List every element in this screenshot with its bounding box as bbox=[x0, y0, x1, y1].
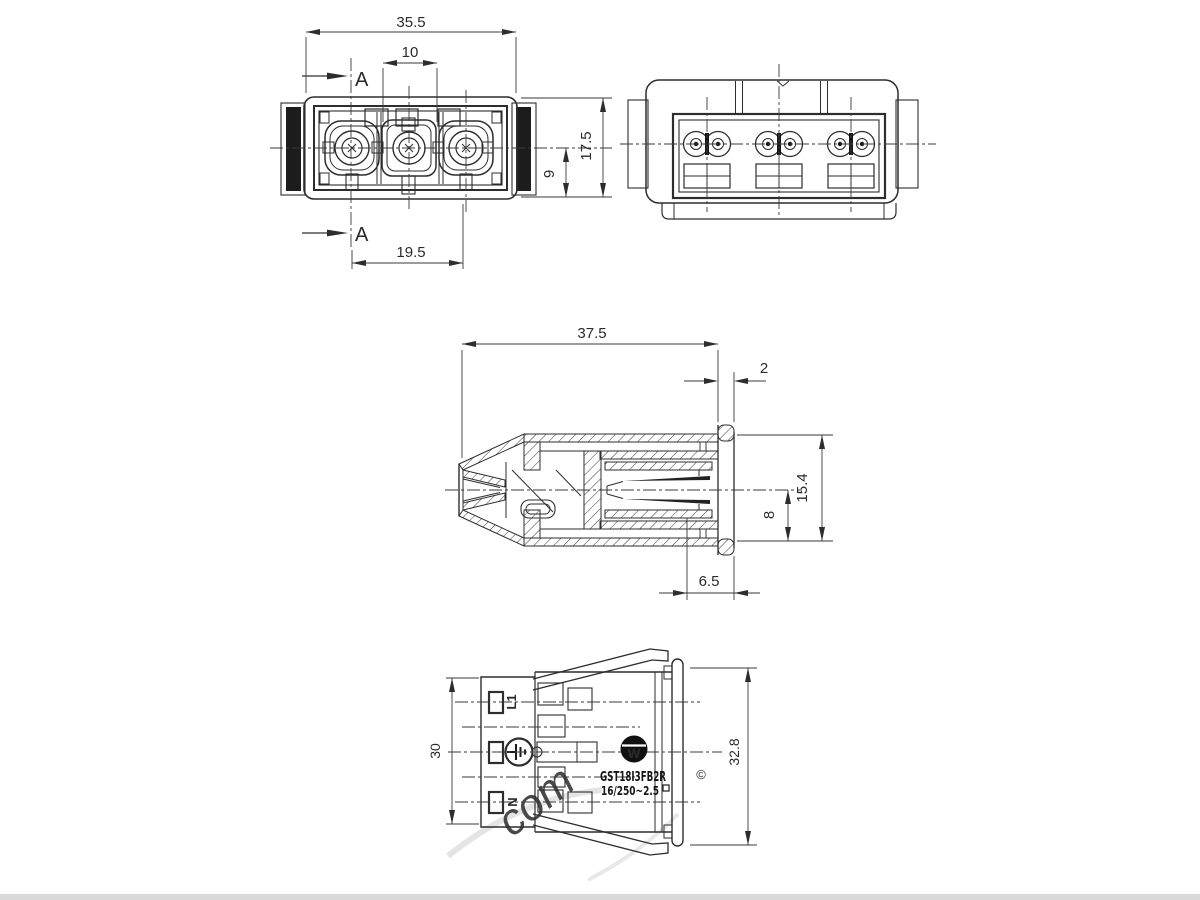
right-latch bbox=[512, 103, 536, 195]
copyright-mark: © bbox=[696, 767, 706, 782]
front-view: A A 35.5 10 19.5 17 bbox=[270, 14, 612, 269]
dim-flange-height: 15.4 bbox=[794, 473, 811, 502]
section-arrow-top bbox=[302, 73, 348, 80]
connector-drawing: com bbox=[0, 0, 1200, 900]
wieland-logo: W bbox=[621, 736, 648, 763]
top-wing bbox=[533, 649, 668, 690]
dim-body-height: 30 bbox=[427, 743, 443, 759]
dim-rear-offset: 6.5 bbox=[699, 573, 720, 590]
dim-side-flange-height: 32.8 bbox=[726, 738, 742, 765]
bottom-wing bbox=[533, 814, 668, 855]
section-view: 37.5 2 15.4 8 6.5 bbox=[445, 325, 833, 600]
section-label-top: A bbox=[355, 69, 369, 91]
dim-overall-length: 37.5 bbox=[577, 325, 606, 342]
dim-center-to-bottom: 9 bbox=[541, 170, 558, 178]
flange-top-cap bbox=[718, 425, 734, 441]
dim-pole-spacing: 10 bbox=[402, 44, 419, 61]
rating-square-symbol bbox=[663, 785, 669, 791]
side-view: L1 N W GST18I3FB2R 16/250~2.5 © bbox=[427, 649, 757, 855]
section-label-bottom: A bbox=[355, 224, 369, 246]
dim-overall-width: 35.5 bbox=[396, 14, 425, 31]
scan-artifact-bar bbox=[0, 894, 1200, 900]
dim-overall-height: 17.5 bbox=[578, 131, 595, 160]
left-latch bbox=[281, 103, 305, 195]
logo-letter: W bbox=[627, 747, 640, 761]
section-arrow-bottom bbox=[302, 230, 348, 237]
dim-flange-thickness: 2 bbox=[760, 360, 768, 377]
technical-drawing-sheet: com bbox=[0, 0, 1200, 900]
dim-outer-pole-spacing: 19.5 bbox=[396, 244, 425, 261]
rating-text: 16/250~2.5 bbox=[601, 783, 659, 798]
flange-bottom-cap bbox=[718, 539, 734, 555]
dim-center-to-bottom-section: 8 bbox=[761, 511, 778, 519]
rear-view bbox=[620, 64, 936, 219]
